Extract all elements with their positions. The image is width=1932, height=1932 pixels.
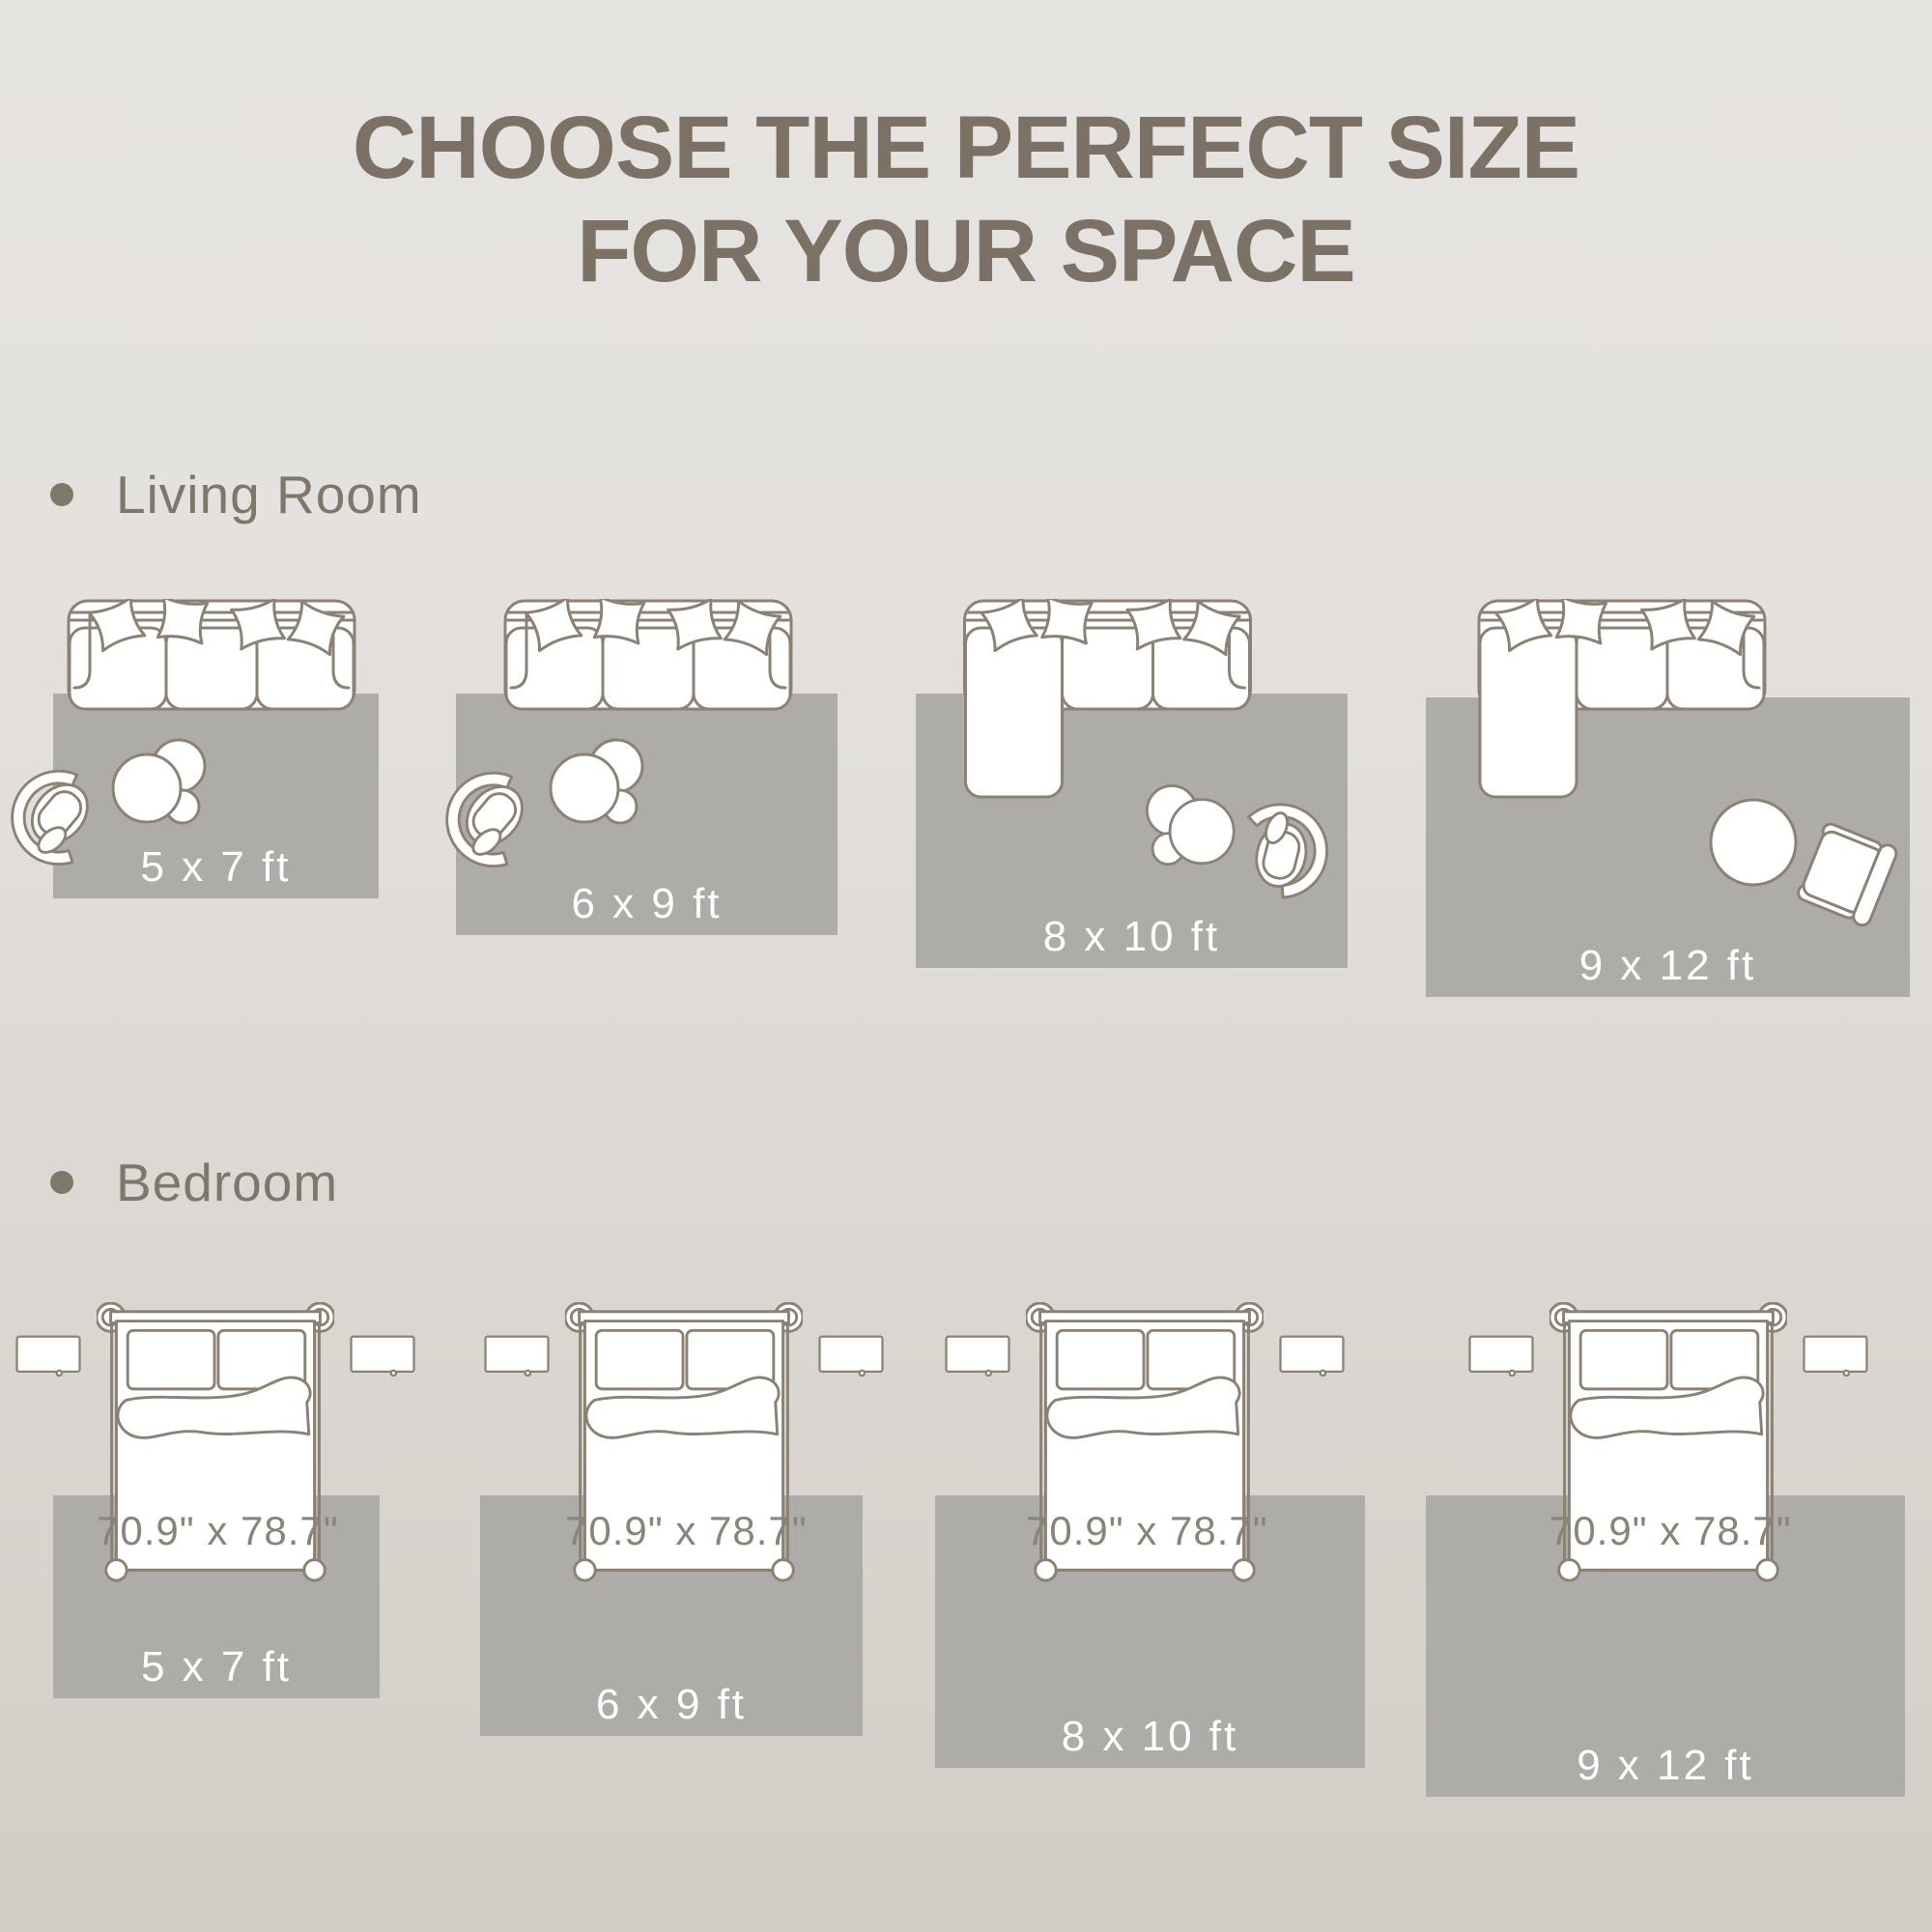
rug-size-guide-infographic: CHOOSE THE PERFECT SIZE FOR YOUR SPACE L… [0, 0, 1932, 1932]
nightstand-illustration [1803, 1335, 1868, 1378]
bedroom-section: Bedroom 5 x 7 ft 70.9" x 78.7" 6 x 9 ft … [0, 0, 1932, 1932]
bedroom-layout-9x12: 9 x 12 ft 70.9" x 78.7" [0, 0, 1932, 1932]
nightstand-illustration [1468, 1335, 1534, 1378]
rug-size-label: 9 x 12 ft [1426, 1742, 1905, 1790]
bed-dimensions-label: 70.9" x 78.7" [1549, 1508, 1787, 1554]
